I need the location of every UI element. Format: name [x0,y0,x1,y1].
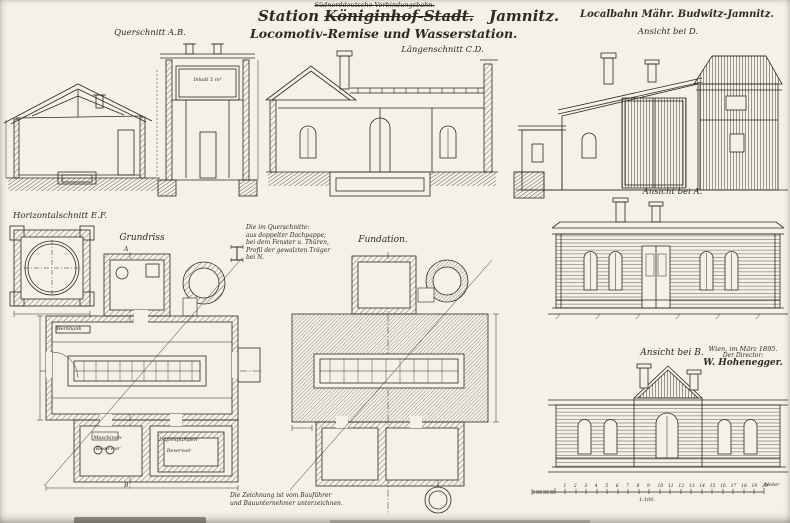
scale-tick-number: 7 [626,484,629,489]
caption-ansicht-d: Ansicht bei D. [618,28,718,37]
caption-ansicht-a: Ansicht bei A. [620,188,725,197]
workbench-label: Werkbank [56,327,82,332]
porch-plan [238,348,260,382]
window [578,420,591,454]
ansicht-a-drawing [548,198,788,319]
room-label-duplexpumpe: Duplexpumpen- Reservoir [150,438,208,455]
spec-note-line: bei N. [246,254,346,262]
room-label-line: Duplexpumpen- [150,438,208,443]
i-beam-profile-icon [231,245,243,262]
window [744,420,757,454]
tank-capacity-label: Inhalt 5 m³ [180,78,235,83]
chimney [604,58,613,84]
scan-smudge [74,517,206,523]
door-section [118,130,134,175]
bottom-note-line: und Bauunternehmer unterzeichnen. [230,500,350,508]
spec-note-line: Profil der gewalzten Träger [246,247,346,255]
window [726,96,746,110]
chimney [186,44,193,54]
signature-name: W. Hohenegger. [698,359,788,368]
scale-tick-number: 2 [574,484,577,489]
chimney [616,202,625,222]
scale-tick-number: 18 [741,484,747,489]
section-mark-a: A [124,247,128,253]
window [718,420,731,454]
window [532,144,543,162]
chimney [640,368,648,388]
caption-grundriss: Grundriss [102,234,182,243]
chimney [648,64,656,82]
ansicht-d-drawing [514,53,788,198]
scale-tick-number: 12 [678,484,684,489]
window [730,134,744,152]
pit-section [330,172,430,196]
horizontalschnitt-drawing [10,226,94,317]
scale-tick-number: 4 [595,484,598,489]
spec-note-line: bei dem Fenster u. Thüren, [246,239,346,247]
scale-tick-numbers: 1234567891011121314151617181920 [532,484,772,492]
scale-tick-number: 5 [605,484,608,489]
scale-tick-number: 17 [731,484,737,489]
scale-tick-number: 9 [647,484,650,489]
room-label-line: Maschinen- [86,436,130,441]
scale-tick-number: 1 [563,484,566,489]
scale-tick-number: 8 [637,484,640,489]
title-word-jamnitz: Jamnitz. [489,7,559,25]
room-label-line: Reservoir [150,449,208,454]
spec-notes: Die im Querschnitte:aus doppelter Dachpa… [246,224,346,262]
title-word-station: Station [258,7,319,25]
bottom-note: Die Zeichnung ist vom Bauführerund Bauun… [230,492,350,507]
scale-tick-number: 3 [584,484,587,489]
spec-note-line: Die im Querschnitte: [246,224,346,232]
railway-right-title: Localbahn Mähr. Budwitz-Jamnitz. [568,10,786,21]
scale-ratio: 1:100. [612,498,682,503]
querschnitt-drawing [4,44,258,196]
chimney [690,374,698,390]
section-mark-b: B [124,483,128,489]
fundation-drawing [290,252,499,515]
chimney [340,56,349,89]
sheet-subtitle: Locomotiv-Remise und Wasserstation. [250,27,490,40]
scale-tick-number: 16 [720,484,726,489]
scale-tick-number: 15 [710,484,716,489]
ansicht-b-drawing [548,364,788,472]
scale-tick-number: 6 [616,484,619,489]
window [604,420,617,454]
caption-querschnitt: Querschnitt A.B. [90,29,210,38]
drawing-sheet: Südnorddeutsche Verbindungsbahn. Station… [0,0,790,523]
sheet-title: Station Königinhof-Stadt. Jamnitz. [258,9,512,25]
chimney [214,44,221,54]
caption-fundation: Fundation. [338,236,428,245]
title-struck-name: Königinhof-Stadt. [324,7,474,25]
scale-tick-number: 13 [689,484,695,489]
tower-roof [694,56,782,84]
scale-tick-number: 11 [668,484,674,489]
window [582,133,596,158]
chimney [652,206,660,222]
signature-block: Wien, im März 1895. Der Director: W. Hoh… [698,346,788,369]
spec-note-line: aus doppelter Dachpappe; [246,232,346,240]
scale-tick-number: 19 [752,484,758,489]
scale-tick-number: 14 [699,484,705,489]
scale-tick-number: 10 [658,484,664,489]
caption-horizontalschnitt: Horizontalschnitt E.F. [13,212,107,221]
scale-unit-label: Meter [764,483,779,488]
room-label-line: Reservoir [86,447,130,452]
caption-laengenschnitt: Längenschnitt C.D. [385,46,500,55]
laengenschnitt-drawing [266,51,498,196]
bottom-note-line: Die Zeichnung ist vom Bauführer [230,492,350,500]
room-label-maschinen: Maschinen- Reservoir [86,436,130,453]
